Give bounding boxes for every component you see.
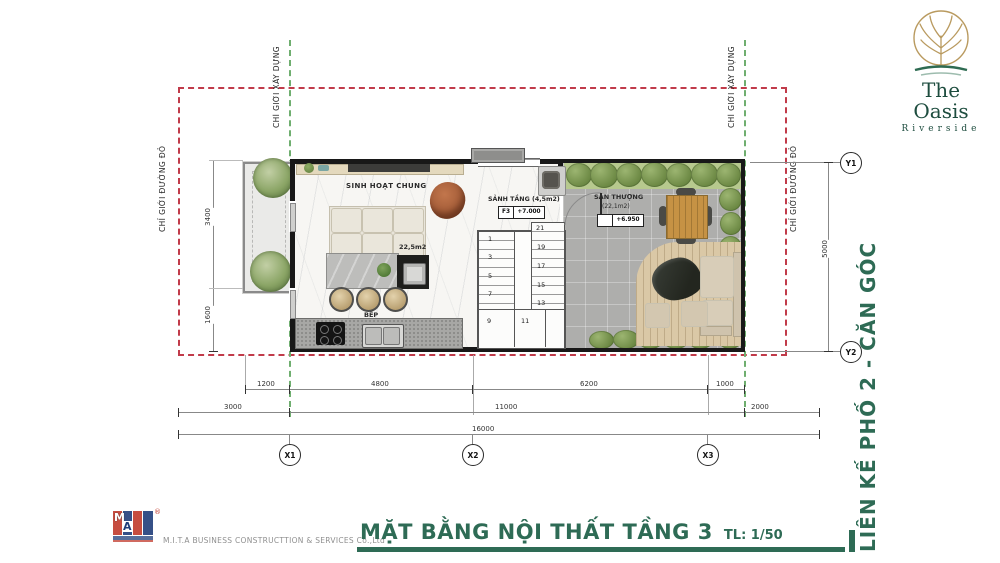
- terrace-label: SÂN THƯỢNG: [594, 193, 643, 201]
- oasis-logo-subtitle: Riverside: [895, 124, 987, 134]
- title-rule-endcap: [849, 530, 855, 552]
- terrace-area-label: (22,1m2): [602, 203, 630, 210]
- mita-registered-mark: ®: [154, 508, 161, 516]
- dim-label: 1000: [714, 381, 736, 388]
- grid-bubble-y1: Y1: [840, 152, 862, 174]
- mita-letter-a: A: [122, 521, 133, 532]
- hall-level-value: +7.000: [514, 207, 544, 218]
- side-title: LIÊN KẾ PHỐ 2 - CĂN GÓC: [856, 312, 880, 552]
- company-name: M.I.T.A BUSINESS CONSTRUCTTION & SERVICE…: [163, 536, 385, 545]
- dim-tick: [289, 408, 290, 417]
- dim-label: 6200: [578, 381, 600, 388]
- living-area-label: 22,5m2: [399, 243, 426, 251]
- hall-level-tag: F3: [499, 207, 514, 218]
- grid-connector: [289, 434, 290, 444]
- dim-label: 5000: [820, 240, 831, 258]
- grid-bubble-x1: X1: [279, 444, 301, 466]
- dim-label: 4800: [369, 381, 391, 388]
- dim-tick: [824, 162, 833, 163]
- kitchen-label: BẾP: [364, 311, 378, 319]
- sheet-title: MẶT BẰNG NỘI THẤT TẦNG 3 TL: 1/50: [360, 520, 783, 544]
- dim-label: 1200: [255, 381, 277, 388]
- dim-tick: [824, 351, 833, 352]
- grid-connector: [707, 434, 708, 444]
- dim-tick: [744, 408, 745, 417]
- extension-line: [209, 288, 243, 289]
- hall-label: SẢNH TẦNG (4,5m2): [488, 196, 560, 203]
- dimension-line: [178, 412, 820, 413]
- grid-bubble-x2: X2: [462, 444, 484, 466]
- sheet-title-scale: TL: 1/50: [724, 528, 783, 543]
- oasis-logo: The Oasis Riverside: [895, 8, 987, 134]
- dimension-line: [245, 389, 745, 390]
- dim-tick: [209, 351, 218, 352]
- dimension-line: [178, 434, 820, 435]
- grid-label: Y1: [846, 159, 857, 168]
- sheet-title-main: MẶT BẰNG NỘI THẤT TẦNG 3: [360, 520, 713, 544]
- dim-tick: [289, 385, 290, 394]
- living-room-label: SINH HOẠT CHUNG: [346, 182, 427, 190]
- dim-label: 3400: [203, 208, 214, 226]
- grid-connector: [472, 434, 473, 444]
- grid-label: Y2: [846, 348, 857, 357]
- floor-plan-sheet: CHỈ GIỚI XÂY DỰNG CHỈ GIỚI XÂY DỰNG CHỈ …: [0, 0, 1000, 563]
- dim-tick: [245, 385, 246, 394]
- extension-line: [209, 160, 243, 161]
- dim-tick: [472, 385, 473, 394]
- grid-label: X2: [467, 451, 478, 460]
- terrace-level-marker: +6.950: [597, 214, 644, 227]
- oasis-logo-title: The Oasis: [895, 80, 987, 122]
- title-rule: [357, 547, 845, 552]
- door-swing-arc: [0, 0, 1000, 563]
- dim-tick: [178, 408, 179, 417]
- dim-label: 3000: [222, 404, 244, 411]
- mita-baseline-strip: [113, 536, 153, 542]
- dim-label: 11000: [493, 404, 519, 411]
- dim-label: 1600: [203, 306, 214, 324]
- dim-tick: [744, 385, 745, 394]
- terrace-level-blank: [598, 215, 613, 226]
- dim-label: 2000: [749, 404, 771, 411]
- dim-tick: [819, 430, 820, 439]
- dim-tick: [707, 385, 708, 394]
- grid-label: X1: [284, 451, 295, 460]
- mita-logo: M A ®: [113, 511, 159, 545]
- terrace-level-value: +6.950: [613, 215, 643, 226]
- oasis-tree-icon: [909, 8, 973, 80]
- grid-bubble-x3: X3: [697, 444, 719, 466]
- dim-tick: [819, 408, 820, 417]
- dim-tick: [178, 430, 179, 439]
- dim-label: 16000: [470, 426, 496, 433]
- grid-label: X3: [702, 451, 713, 460]
- hall-level-marker: F3 +7.000: [498, 206, 545, 219]
